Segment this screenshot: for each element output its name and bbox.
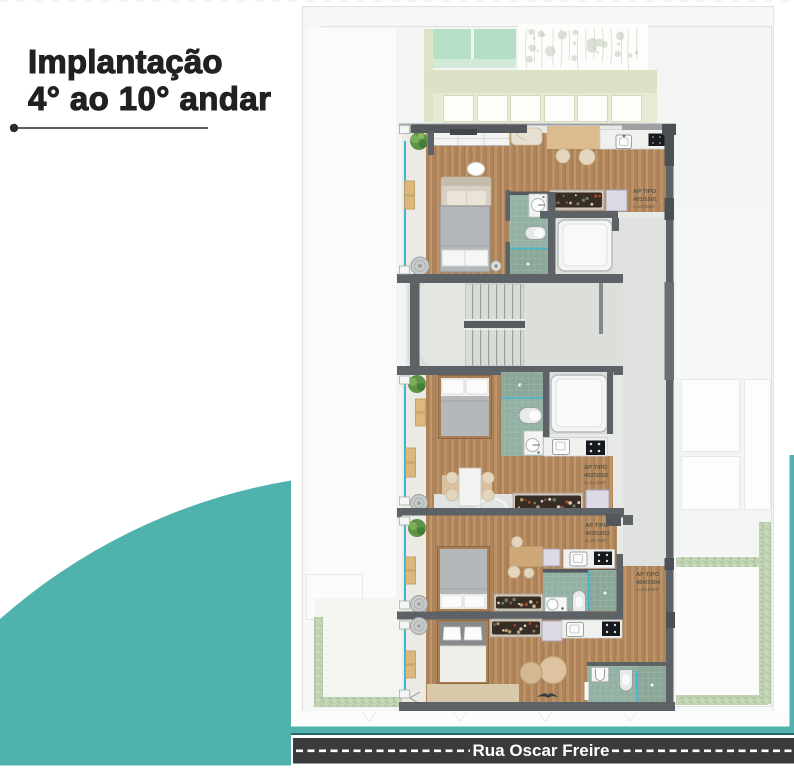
svg-text:402/1002: 402/1002 [584,473,608,479]
svg-text:AP TIPO: AP TIPO [636,572,660,578]
svg-text:A=16,70m²: A=16,70m² [585,538,608,543]
svg-text:AP TIPO: AP TIPO [633,189,657,195]
svg-text:AP TIPO: AP TIPO [584,465,608,471]
svg-text:AP TIPO: AP TIPO [585,523,609,529]
svg-text:401/1001: 401/1001 [633,197,658,203]
svg-text:Rua Oscar Freire: Rua Oscar Freire [472,741,609,760]
svg-text:403/1003: 403/1003 [585,531,610,537]
svg-text:A=23,94m²: A=23,94m² [636,587,659,592]
svg-text:404/1004: 404/1004 [636,580,661,586]
svg-text:A=21,12m²: A=21,12m² [584,480,607,485]
svg-text:A=23,03m²: A=23,03m² [633,204,656,209]
